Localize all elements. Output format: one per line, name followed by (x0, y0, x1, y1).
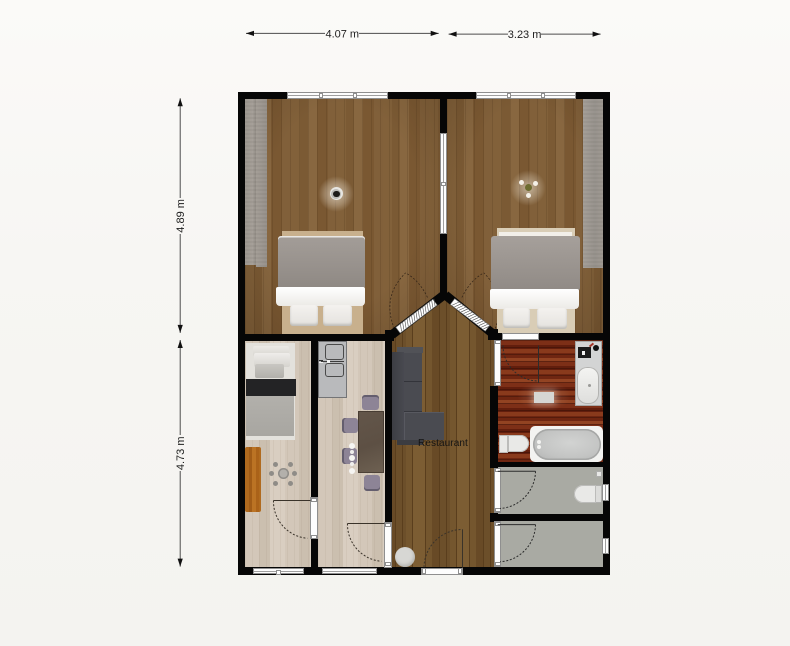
svg-text:4.07 m: 4.07 m (325, 28, 359, 40)
svg-text:3.23 m: 3.23 m (508, 29, 542, 41)
svg-text:4.89 m: 4.89 m (175, 199, 187, 233)
svg-text:4.73 m: 4.73 m (175, 436, 187, 470)
